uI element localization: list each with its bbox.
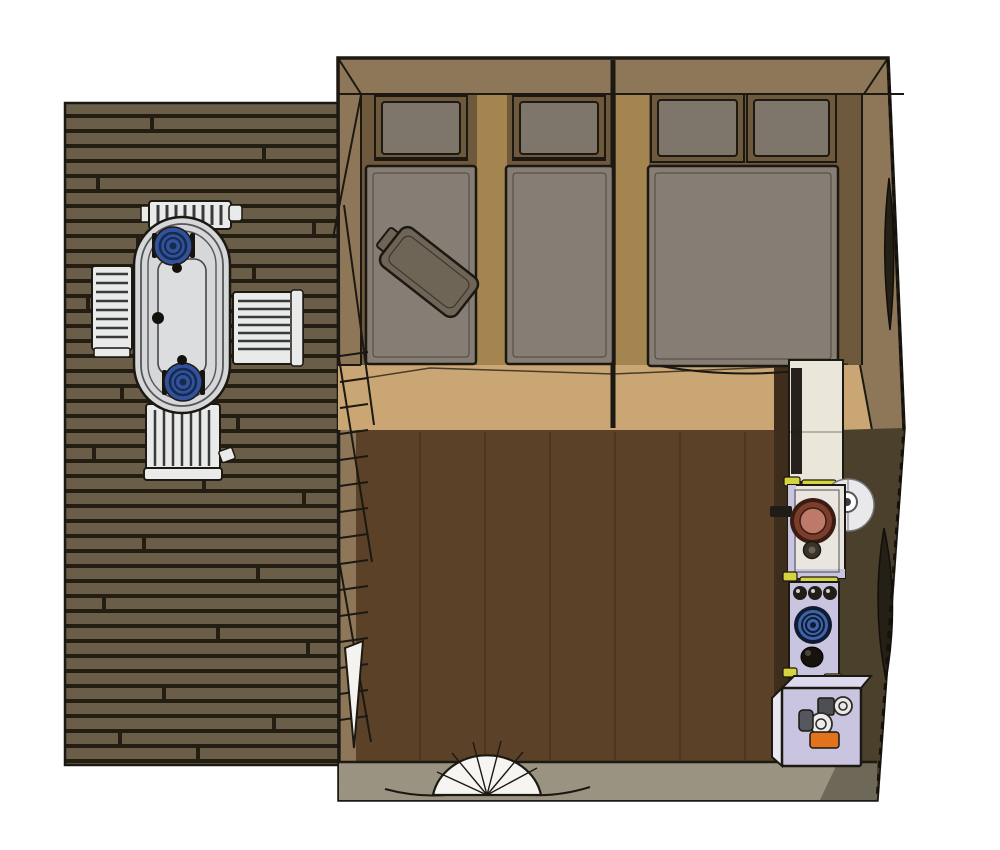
tent-cabin-top-view	[0, 0, 1000, 850]
mattress	[506, 166, 613, 364]
floorplan-render	[0, 0, 1000, 850]
bed-gap-strip-2	[616, 94, 649, 365]
pillow	[520, 102, 598, 154]
double-bed	[648, 94, 838, 374]
chair-left	[92, 266, 132, 357]
bed-gap-strip-1	[477, 94, 507, 365]
stove-knob	[823, 586, 837, 600]
pillow	[382, 102, 460, 154]
stove-unit	[789, 582, 839, 678]
storage-box	[772, 676, 871, 766]
tent-cabin	[333, 58, 904, 800]
mattress	[648, 166, 838, 366]
stove-knob	[808, 586, 822, 600]
kitchen-cabinet	[789, 360, 843, 482]
faucet-handle	[770, 506, 792, 517]
pillow	[754, 100, 829, 156]
outdoor-table	[134, 217, 230, 413]
single-bed-middle	[506, 96, 613, 364]
stove-knob	[793, 586, 807, 600]
orange-box	[810, 732, 839, 748]
chair-right	[233, 290, 303, 366]
kettle	[801, 647, 823, 667]
pillow	[658, 100, 737, 156]
walnut-floor	[356, 430, 776, 762]
